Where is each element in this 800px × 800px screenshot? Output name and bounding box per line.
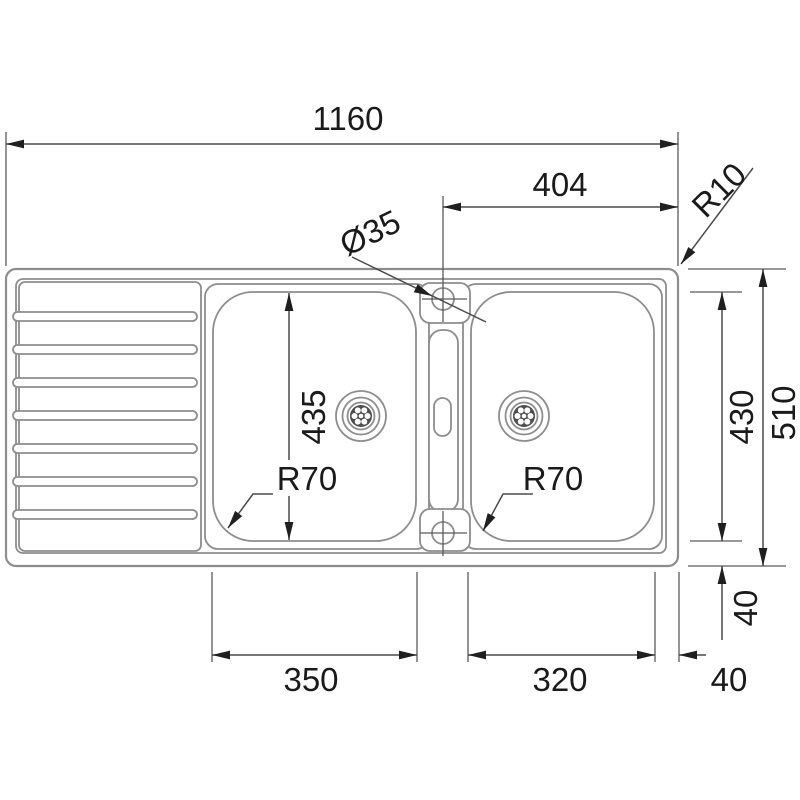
strainer-grate-hole	[524, 419, 530, 425]
overflow-slot	[434, 398, 451, 436]
sink-outline	[6, 269, 678, 566]
label-left-bowl-length: 435	[295, 389, 332, 444]
strainer-grate-hole	[361, 407, 367, 413]
strainer-grate-hole	[361, 419, 367, 425]
label-left-bowl-radius: R70	[277, 460, 338, 497]
label-right-bowl-radius: R70	[523, 460, 584, 497]
label-right-rim-width: 40	[711, 661, 748, 698]
drainboard-groove	[13, 510, 197, 519]
sink-technical-drawing: 1160 404 R10 Ø35 435 R70 R70 430 510 40 …	[0, 0, 800, 800]
strainer-grate-hole	[365, 413, 371, 419]
strainer-grate-hole	[518, 407, 524, 413]
strainer-grate-hole	[359, 414, 364, 419]
label-404: 404	[532, 166, 587, 203]
label-left-bowl-width: 350	[283, 661, 338, 698]
label-overall-depth: 510	[765, 385, 800, 440]
drainboard-groove	[13, 477, 197, 486]
strainer-grate-hole	[355, 419, 361, 425]
drawing-canvas: 1160 404 R10 Ø35 435 R70 R70 430 510 40 …	[0, 0, 800, 800]
strainer-grate-hole	[522, 414, 527, 419]
label-right-bowl-length: 430	[723, 389, 760, 444]
drainboard-groove	[13, 444, 197, 453]
label-corner-radius-r10: R10	[684, 155, 753, 224]
label-overall-length: 1160	[313, 100, 384, 137]
strainer-grate-hole	[515, 413, 521, 419]
strainer-grate-hole	[524, 407, 530, 413]
drainboard-groove	[13, 345, 197, 354]
strainer-grate-hole	[352, 413, 358, 419]
label-tap-hole-diameter: Ø35	[334, 202, 406, 263]
drainboard-groove	[13, 411, 197, 420]
label-bottom-rim-width: 40	[727, 590, 764, 627]
drainboard-groove	[13, 378, 197, 387]
strainer-grate-hole	[355, 407, 361, 413]
label-right-bowl-width: 320	[532, 661, 587, 698]
drainboard-groove	[13, 312, 197, 321]
strainer-grate-hole	[528, 413, 534, 419]
strainer-grate-hole	[518, 419, 524, 425]
